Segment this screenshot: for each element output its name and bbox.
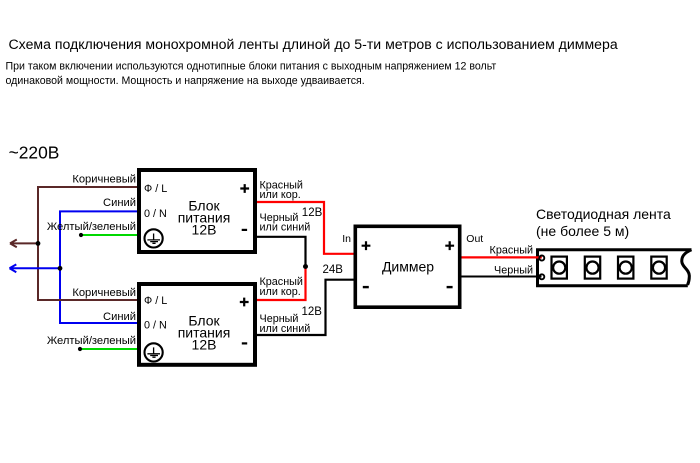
svg-text:Схема подключения монохромной: Схема подключения монохромной ленты длин… — [9, 36, 618, 52]
svg-text:24В: 24В — [323, 264, 344, 276]
svg-text:или кор.: или кор. — [260, 286, 301, 298]
svg-text:одинаковой мощности. Мощность: одинаковой мощности. Мощность и напряжен… — [6, 75, 365, 87]
svg-text:12В: 12В — [192, 336, 217, 352]
svg-text:Светодиодная лента: Светодиодная лента — [536, 206, 671, 222]
svg-text:или синий: или синий — [260, 323, 311, 335]
svg-text:In: In — [342, 233, 351, 245]
svg-text:12В: 12В — [302, 207, 323, 219]
svg-text:Желтый/зеленый: Желтый/зеленый — [47, 335, 136, 347]
svg-text:Ф / L: Ф / L — [144, 295, 167, 307]
svg-text:Синий: Синий — [103, 311, 136, 323]
svg-text:12В: 12В — [192, 222, 217, 238]
svg-text:При таком включении используют: При таком включении используются однотип… — [6, 60, 497, 72]
svg-text:Желтый/зеленый: Желтый/зеленый — [47, 221, 136, 233]
svg-text:Черный: Черный — [494, 265, 533, 277]
svg-text:Синий: Синий — [103, 197, 136, 209]
svg-text:или кор.: или кор. — [260, 189, 301, 201]
svg-text:Out: Out — [466, 233, 483, 245]
svg-text:(не более 5 м): (не более 5 м) — [536, 223, 629, 239]
svg-text:0 / N: 0 / N — [144, 319, 167, 331]
svg-text:0 / N: 0 / N — [144, 208, 167, 220]
svg-text:Диммер: Диммер — [382, 259, 434, 275]
svg-text:Красный: Красный — [490, 244, 533, 256]
svg-text:или синий: или синий — [260, 222, 311, 234]
svg-text:~220В: ~220В — [9, 142, 60, 162]
svg-text:Коричневый: Коричневый — [72, 174, 136, 186]
svg-text:12В: 12В — [302, 306, 323, 318]
svg-text:Коричневый: Коричневый — [72, 287, 136, 299]
svg-text:Ф / L: Ф / L — [144, 183, 167, 195]
